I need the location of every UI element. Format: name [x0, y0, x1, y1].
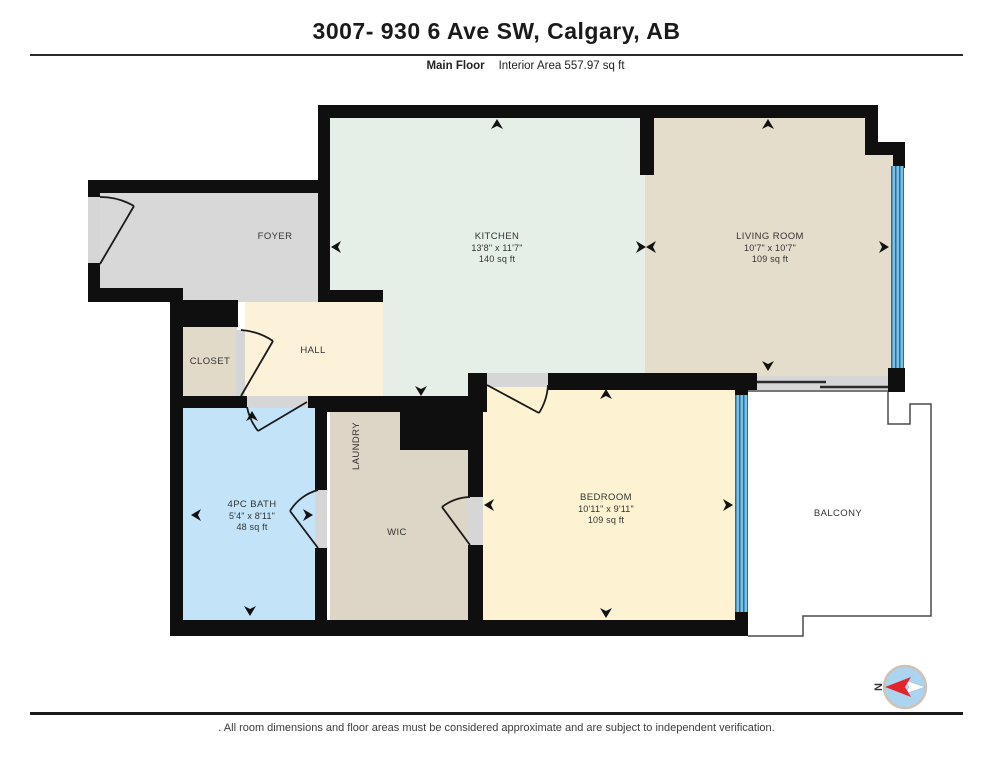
wall — [88, 180, 100, 197]
exterior-corner — [878, 118, 893, 142]
footer-divider — [30, 712, 963, 715]
floor-label: Main Floor — [426, 60, 484, 72]
wall — [735, 612, 748, 622]
room-name: BEDROOM — [546, 492, 666, 504]
laundry-label: LAUNDRY — [322, 416, 392, 476]
compass: N — [873, 666, 926, 708]
foyer-label: FOYER — [245, 231, 305, 243]
wall — [170, 620, 748, 636]
interior-area-label: Interior Area 557.97 sq ft — [499, 60, 625, 72]
floorplan-page: 3007- 930 6 Ave SW, Calgary, AB Main Flo… — [0, 0, 993, 768]
room-name: CLOSET — [180, 356, 240, 368]
room-area: 48 sq ft — [192, 522, 312, 533]
room-area: 109 sq ft — [546, 515, 666, 526]
wic-bedroom-door-opening — [468, 497, 483, 545]
wall — [888, 368, 905, 392]
wall — [183, 396, 247, 408]
bedroom-door-opening — [487, 373, 548, 387]
wall — [318, 396, 472, 412]
living-room-window — [891, 166, 904, 368]
balcony-sliding-door — [757, 376, 888, 390]
room-name: HALL — [283, 345, 343, 357]
room-name: KITCHEN — [437, 231, 557, 243]
room-dimensions: 13'8" x 11'7" — [437, 243, 557, 254]
wic-label: WIC — [367, 527, 427, 539]
wall — [308, 396, 327, 408]
bedroom-window — [735, 395, 748, 612]
compass-ring — [884, 666, 926, 708]
disclaimer-text: . All room dimensions and floor areas mu… — [0, 722, 993, 734]
room-name: 4PC BATH — [192, 499, 312, 511]
room-dimensions: 10'7" x 10'7" — [710, 243, 830, 254]
bedroom-label: BEDROOM 10'11" x 9'11" 109 sq ft — [546, 492, 666, 526]
floor-subtitle: Main FloorInterior Area 557.97 sq ft — [0, 60, 993, 72]
wall — [468, 545, 483, 620]
hall-label: HALL — [283, 345, 343, 357]
bath-wic-door-opening — [315, 490, 327, 548]
wall — [315, 548, 327, 620]
closet-label: CLOSET — [180, 356, 240, 368]
wall — [183, 300, 238, 327]
kitchen-label: KITCHEN 13'8" x 11'7" 140 sq ft — [437, 231, 557, 265]
wall — [548, 373, 757, 390]
room-dimensions: 5'4" x 8'11" — [192, 511, 312, 522]
compass-needle-white — [905, 680, 925, 694]
compass-north-label: N — [873, 683, 885, 691]
room-name: BALCONY — [808, 508, 868, 520]
room-area: 109 sq ft — [710, 254, 830, 265]
room-name: WIC — [367, 527, 427, 539]
wall — [170, 288, 183, 622]
page-title: 3007- 930 6 Ave SW, Calgary, AB — [0, 18, 993, 45]
wall — [88, 180, 330, 193]
room-name: FOYER — [245, 231, 305, 243]
room-dimensions: 10'11" x 9'11" — [546, 504, 666, 515]
wall — [318, 105, 878, 118]
foyer-floor — [100, 193, 318, 302]
compass-needle-north — [885, 677, 911, 697]
room-name: LIVING ROOM — [710, 231, 830, 243]
wall — [735, 373, 748, 395]
living-room-label: LIVING ROOM 10'7" x 10'7" 109 sq ft — [710, 231, 830, 265]
wall — [318, 290, 383, 302]
entry-door-opening — [88, 197, 100, 263]
balcony-label: BALCONY — [808, 508, 868, 520]
bath-label: 4PC BATH 5'4" x 8'11" 48 sq ft — [192, 499, 312, 533]
wall — [400, 412, 472, 450]
room-area: 140 sq ft — [437, 254, 557, 265]
wall — [640, 118, 654, 175]
wall — [88, 288, 183, 302]
bath-door-opening — [247, 396, 308, 408]
header-divider — [30, 54, 963, 56]
room-name: LAUNDRY — [351, 422, 363, 470]
wall — [865, 142, 905, 155]
wall — [318, 105, 330, 302]
